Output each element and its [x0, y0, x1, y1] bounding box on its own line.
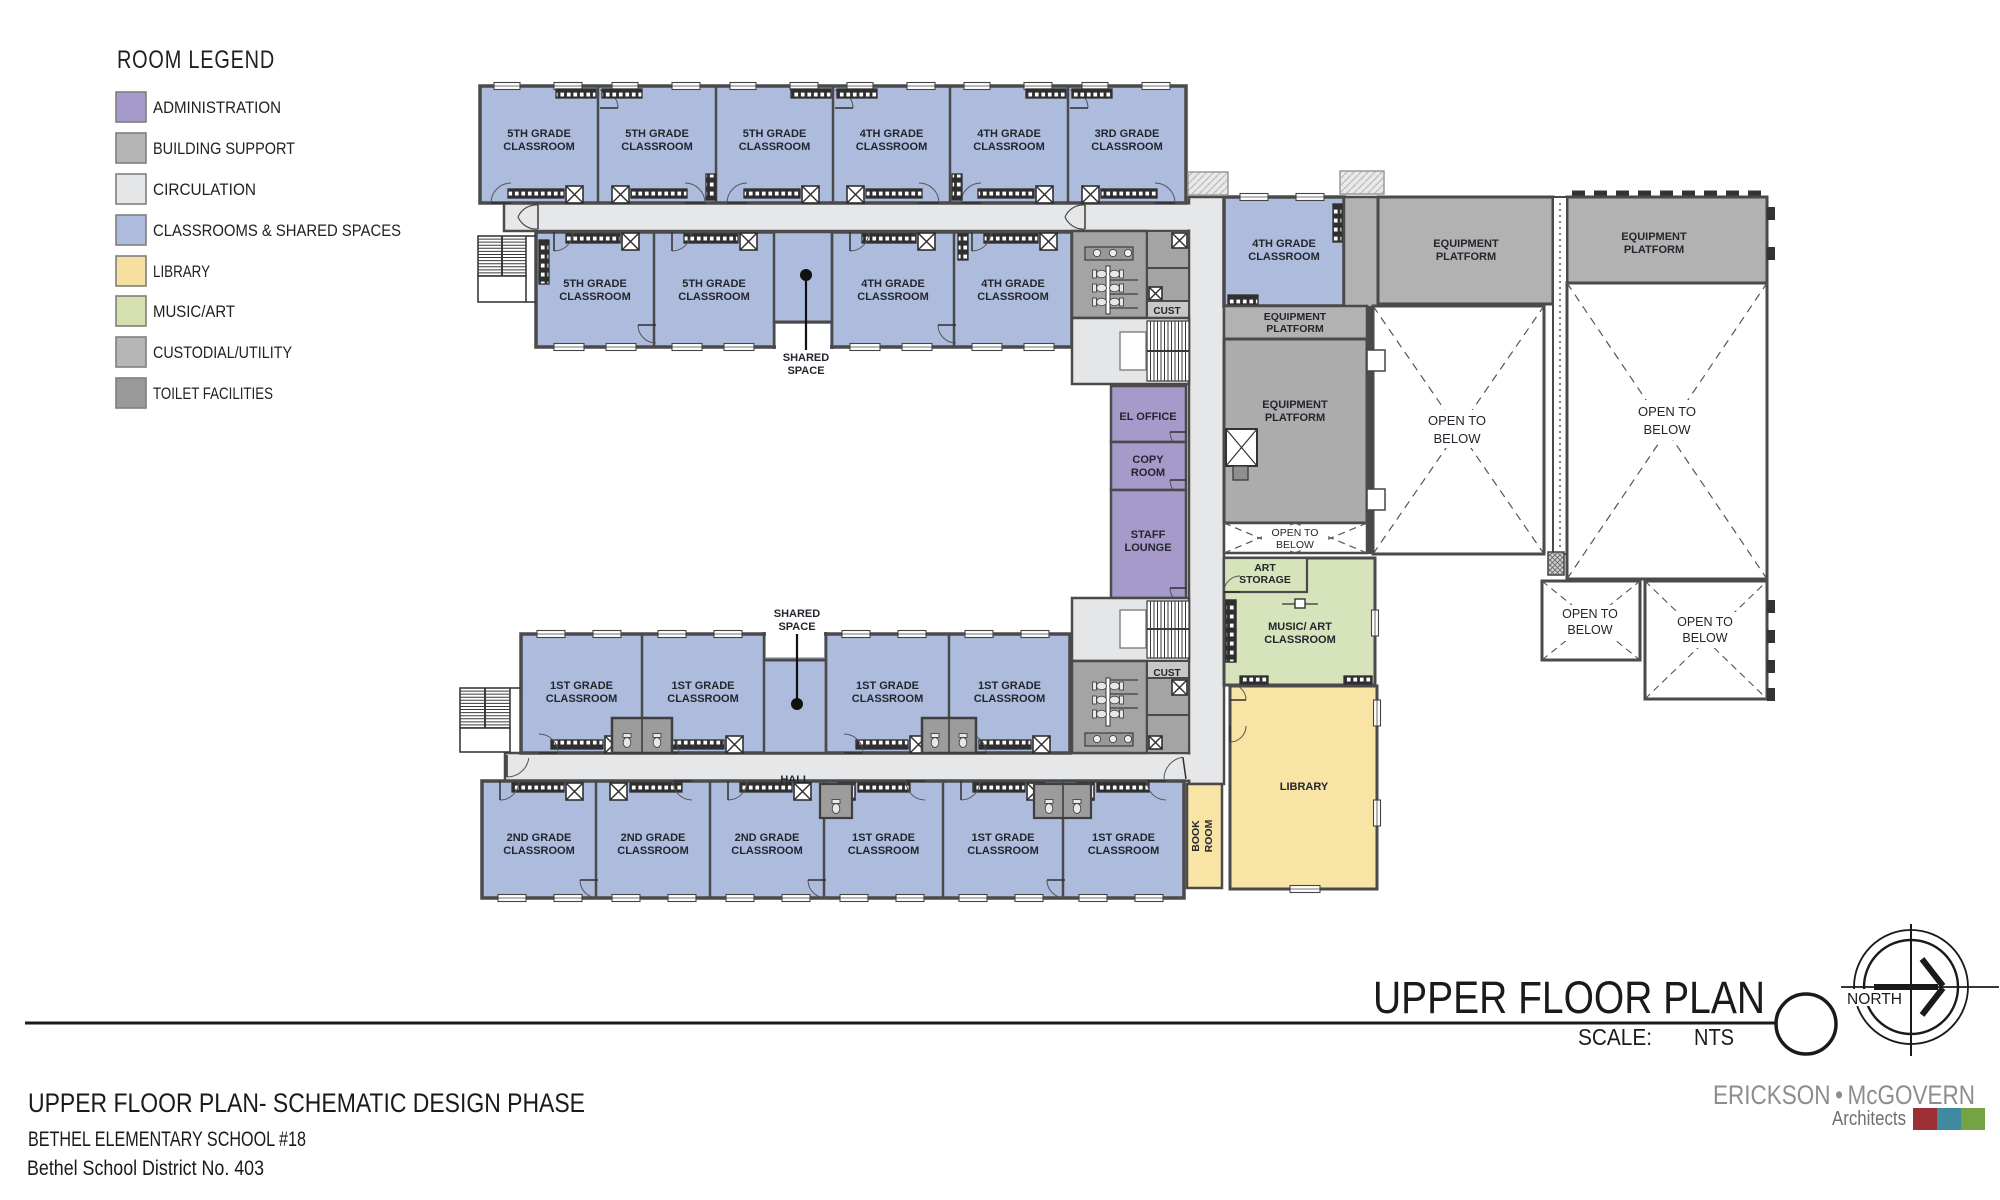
- svg-text:CLASSROOM: CLASSROOM: [621, 141, 693, 153]
- svg-text:1ST GRADE: 1ST GRADE: [672, 680, 735, 692]
- svg-text:EL OFFICE: EL OFFICE: [1119, 411, 1176, 423]
- svg-text:BOOK: BOOK: [1190, 820, 1202, 852]
- svg-text:4TH GRADE: 4TH GRADE: [1252, 238, 1316, 250]
- svg-text:BELOW: BELOW: [1276, 539, 1314, 551]
- svg-text:CLASSROOM: CLASSROOM: [678, 291, 750, 303]
- svg-text:ROOM LEGEND: ROOM LEGEND: [117, 46, 275, 74]
- svg-text:MUSIC/ ART: MUSIC/ ART: [1268, 621, 1332, 633]
- svg-text:BELOW: BELOW: [1644, 422, 1692, 437]
- svg-text:ROOM: ROOM: [1203, 819, 1215, 852]
- svg-text:1ST GRADE: 1ST GRADE: [972, 832, 1035, 844]
- svg-text:CLASSROOM: CLASSROOM: [974, 693, 1046, 705]
- svg-text:5TH GRADE: 5TH GRADE: [563, 278, 627, 290]
- svg-text:CLASSROOM: CLASSROOM: [739, 141, 811, 153]
- svg-text:SPACE: SPACE: [787, 365, 824, 377]
- svg-text:CLASSROOMS & SHARED SPACES: CLASSROOMS & SHARED SPACES: [153, 221, 401, 240]
- svg-text:EQUIPMENT: EQUIPMENT: [1621, 231, 1687, 243]
- svg-text:CLASSROOM: CLASSROOM: [731, 845, 803, 857]
- svg-text:CLASSROOM: CLASSROOM: [1264, 634, 1336, 646]
- svg-text:1ST GRADE: 1ST GRADE: [978, 680, 1041, 692]
- svg-text:CLASSROOM: CLASSROOM: [617, 845, 689, 857]
- svg-text:OPEN TO: OPEN TO: [1272, 527, 1319, 539]
- svg-text:1ST GRADE: 1ST GRADE: [1092, 832, 1155, 844]
- svg-text:CLASSROOM: CLASSROOM: [1091, 141, 1163, 153]
- svg-text:ERICKSON • McGOVERN: ERICKSON • McGOVERN: [1713, 1080, 1975, 1110]
- svg-text:CLASSROOM: CLASSROOM: [973, 141, 1045, 153]
- svg-text:CLASSROOM: CLASSROOM: [848, 845, 920, 857]
- svg-text:EQUIPMENT: EQUIPMENT: [1262, 399, 1328, 411]
- svg-text:PLATFORM: PLATFORM: [1265, 412, 1325, 424]
- svg-text:MUSIC/ART: MUSIC/ART: [153, 302, 235, 321]
- svg-text:4TH GRADE: 4TH GRADE: [861, 278, 925, 290]
- svg-text:OPEN TO: OPEN TO: [1428, 413, 1486, 428]
- svg-text:EQUIPMENT: EQUIPMENT: [1433, 238, 1499, 250]
- svg-text:ROOM: ROOM: [1131, 467, 1165, 479]
- svg-text:CLASSROOM: CLASSROOM: [546, 693, 618, 705]
- svg-text:CLASSROOM: CLASSROOM: [856, 141, 928, 153]
- svg-text:EQUIPMENT: EQUIPMENT: [1264, 311, 1327, 323]
- svg-text:CLASSROOM: CLASSROOM: [857, 291, 929, 303]
- svg-text:BELOW: BELOW: [1567, 623, 1612, 637]
- svg-text:CUSTODIAL/UTILITY: CUSTODIAL/UTILITY: [153, 343, 292, 362]
- svg-text:5TH GRADE: 5TH GRADE: [682, 278, 746, 290]
- svg-text:SHARED: SHARED: [774, 608, 821, 620]
- svg-text:UPPER FLOOR PLAN- SCHEMATIC DE: UPPER FLOOR PLAN- SCHEMATIC DESIGN PHASE: [28, 1088, 585, 1118]
- svg-text:BELOW: BELOW: [1682, 631, 1727, 645]
- svg-text:2ND GRADE: 2ND GRADE: [621, 832, 686, 844]
- svg-text:NORTH: NORTH: [1847, 991, 1902, 1008]
- svg-text:CLASSROOM: CLASSROOM: [503, 845, 575, 857]
- svg-text:CUST: CUST: [1153, 306, 1180, 317]
- svg-text:1ST GRADE: 1ST GRADE: [852, 832, 915, 844]
- svg-text:BELOW: BELOW: [1434, 431, 1482, 446]
- svg-text:UPPER FLOOR PLAN: UPPER FLOOR PLAN: [1373, 972, 1765, 1023]
- svg-text:1ST GRADE: 1ST GRADE: [550, 680, 613, 692]
- svg-text:STORAGE: STORAGE: [1239, 574, 1291, 586]
- svg-text:STAFF: STAFF: [1131, 529, 1166, 541]
- svg-text:2ND GRADE: 2ND GRADE: [507, 832, 572, 844]
- svg-text:SPACE: SPACE: [778, 621, 815, 633]
- svg-text:CLASSROOM: CLASSROOM: [503, 141, 575, 153]
- svg-text:5TH GRADE: 5TH GRADE: [743, 128, 807, 140]
- svg-text:4TH GRADE: 4TH GRADE: [977, 128, 1041, 140]
- svg-text:SHARED: SHARED: [783, 352, 830, 364]
- svg-text:LIBRARY: LIBRARY: [153, 262, 210, 281]
- svg-text:5TH GRADE: 5TH GRADE: [625, 128, 689, 140]
- svg-text:BETHEL ELEMENTARY SCHOOL #18: BETHEL ELEMENTARY SCHOOL #18: [28, 1128, 306, 1151]
- svg-text:CIRCULATION: CIRCULATION: [153, 180, 256, 199]
- svg-text:4TH GRADE: 4TH GRADE: [981, 278, 1045, 290]
- svg-text:LIBRARY: LIBRARY: [1280, 781, 1329, 793]
- svg-text:SCALE:: SCALE:: [1578, 1024, 1652, 1050]
- svg-text:CLASSROOM: CLASSROOM: [667, 693, 739, 705]
- svg-text:PLATFORM: PLATFORM: [1266, 323, 1324, 335]
- svg-text:PLATFORM: PLATFORM: [1436, 251, 1496, 263]
- svg-text:OPEN TO: OPEN TO: [1638, 404, 1696, 419]
- svg-text:2ND GRADE: 2ND GRADE: [735, 832, 800, 844]
- svg-text:ART: ART: [1254, 562, 1276, 574]
- svg-text:LOUNGE: LOUNGE: [1124, 542, 1171, 554]
- svg-text:CLASSROOM: CLASSROOM: [1248, 251, 1320, 263]
- svg-text:1ST GRADE: 1ST GRADE: [856, 680, 919, 692]
- svg-text:CLASSROOM: CLASSROOM: [559, 291, 631, 303]
- svg-text:CLASSROOM: CLASSROOM: [852, 693, 924, 705]
- svg-text:BUILDING SUPPORT: BUILDING SUPPORT: [153, 139, 295, 158]
- svg-text:5TH GRADE: 5TH GRADE: [507, 128, 571, 140]
- svg-text:TOILET FACILITIES: TOILET FACILITIES: [153, 384, 273, 403]
- svg-text:PLATFORM: PLATFORM: [1624, 244, 1684, 256]
- svg-text:COPY: COPY: [1132, 454, 1164, 466]
- svg-text:CLASSROOM: CLASSROOM: [977, 291, 1049, 303]
- svg-text:CLASSROOM: CLASSROOM: [967, 845, 1039, 857]
- svg-text:3RD GRADE: 3RD GRADE: [1095, 128, 1160, 140]
- svg-text:Architects: Architects: [1832, 1108, 1906, 1130]
- svg-text:HALL: HALL: [780, 774, 810, 786]
- svg-text:CLASSROOM: CLASSROOM: [1088, 845, 1160, 857]
- svg-text:ADMINISTRATION: ADMINISTRATION: [153, 98, 281, 117]
- svg-text:4TH GRADE: 4TH GRADE: [860, 128, 924, 140]
- svg-text:NTS: NTS: [1694, 1024, 1734, 1050]
- svg-text:Bethel School District No. 403: Bethel School District No. 403: [27, 1157, 264, 1180]
- svg-text:OPEN TO: OPEN TO: [1562, 607, 1618, 621]
- svg-text:OPEN TO: OPEN TO: [1677, 615, 1733, 629]
